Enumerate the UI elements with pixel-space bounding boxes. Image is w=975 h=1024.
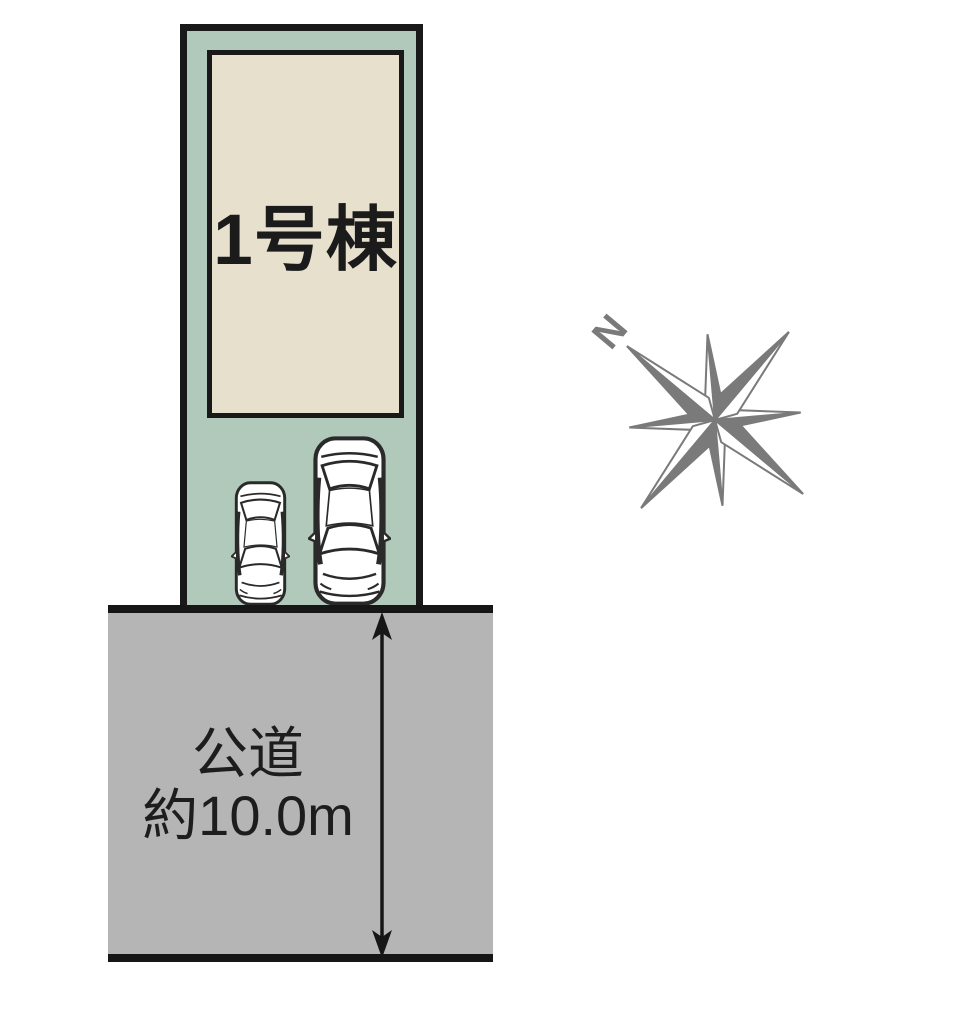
building-block: 1号棟 [207, 50, 404, 418]
road-width-dimension-arrow [368, 612, 396, 958]
road-edge-line-bottom [108, 954, 493, 962]
compass-rose-icon: N [565, 270, 865, 570]
site-plan-canvas: 1号棟 [0, 0, 975, 1024]
compact-car-top-view-icon [231, 481, 290, 606]
road-label: 公道 約10.0m [108, 723, 388, 847]
road-width-text: 約10.0m [108, 785, 388, 847]
compass-north-label: N [584, 307, 636, 357]
road-name: 公道 [108, 723, 388, 785]
road-edge-line-top [108, 605, 493, 613]
sedan-car-top-view-icon [308, 436, 391, 606]
building-label: 1号棟 [213, 183, 398, 285]
